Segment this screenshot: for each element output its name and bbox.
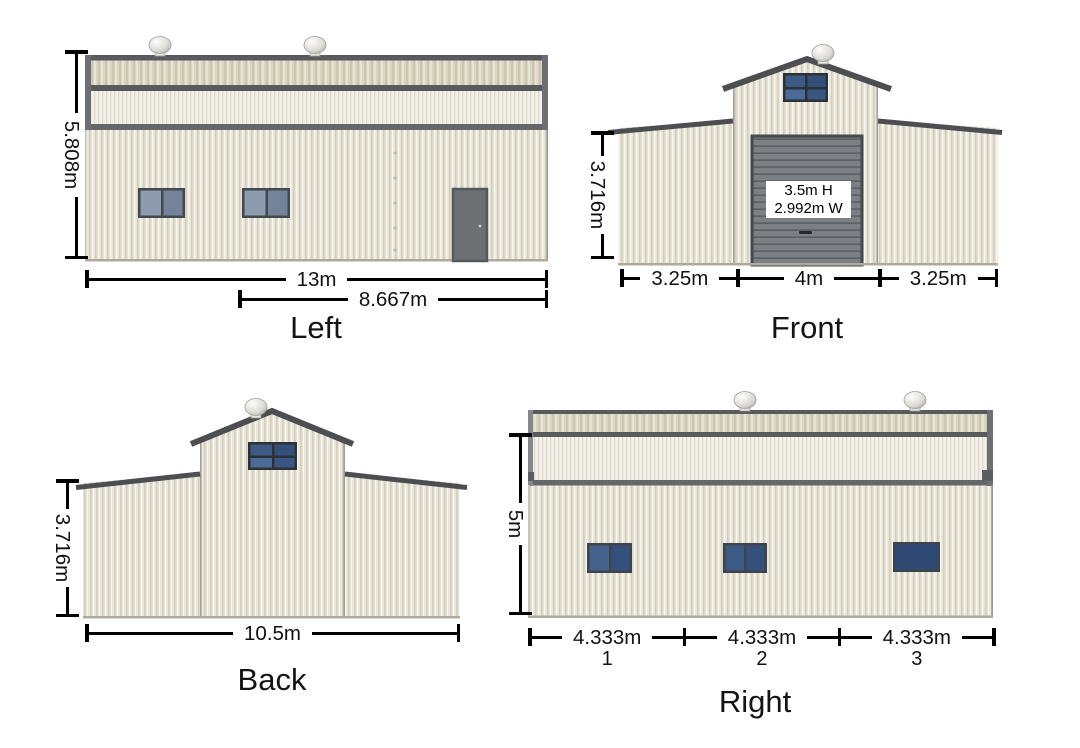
- personnel-door: [453, 189, 487, 261]
- dim-text: 3.25m: [640, 269, 719, 288]
- back-height-dimension: 3.716m: [56, 479, 79, 617]
- right-mid-trim-lower: [528, 480, 993, 486]
- elevation-sheet: 5.808m 13m 8.667m Left: [0, 0, 1080, 748]
- dim-text: 4.333m: [562, 628, 652, 647]
- dim-text: 3.716m: [50, 514, 74, 582]
- roof-vent: [149, 37, 171, 57]
- garage-door-handle: [799, 231, 812, 234]
- view-title-front: Front: [737, 310, 877, 346]
- front-right-wing-wall: [878, 120, 998, 265]
- view-title-back: Back: [202, 662, 342, 698]
- front-ground-line: [618, 263, 998, 266]
- dim-text: 4.333m: [872, 628, 962, 647]
- right-roof-band: [528, 413, 993, 432]
- bay-number: 3: [841, 649, 992, 669]
- back-right-wing-wall: [345, 473, 460, 618]
- right-window-3: [893, 542, 940, 572]
- left-elevation-drawing: [80, 35, 555, 267]
- bay-number: 1: [532, 649, 683, 669]
- left-clerestory-band: [85, 91, 548, 124]
- front-bay-dimensions: 3.25m 4m 3.25m: [620, 269, 998, 287]
- dim-text: 3.716m: [585, 161, 609, 229]
- left-corner-trim-right: [542, 55, 548, 130]
- dim-text: 5m: [503, 510, 527, 538]
- bay-number: 2: [686, 649, 837, 669]
- dim-text: 4m: [784, 269, 834, 288]
- dim-text: 4.333m: [717, 628, 807, 647]
- gable-window: [248, 442, 297, 470]
- garage-door-size-label: 3.5m H 2.992m W: [766, 181, 851, 218]
- right-height-dimension: 5m: [509, 433, 532, 615]
- right-elevation-drawing: [520, 390, 1000, 620]
- right-clerestory-band: [528, 437, 993, 480]
- view-title-left: Left: [246, 310, 386, 346]
- back-left-wing-wall: [83, 473, 200, 618]
- right-top-trim: [528, 410, 993, 414]
- left-window-1: [138, 188, 185, 218]
- view-title-right: Right: [685, 684, 825, 720]
- right-mid-trim-upper: [528, 432, 993, 437]
- left-partial-width-dimension: 8.667m: [238, 290, 548, 308]
- left-height-dimension: 5.808m: [65, 50, 88, 259]
- right-bay-dimensions: 4.333m 1 4.333m 2 4.333m: [528, 628, 996, 646]
- roof-vent: [734, 392, 756, 412]
- back-width-dimension: 10.5m: [85, 624, 460, 642]
- roof-vent: [304, 37, 326, 57]
- dim-text: 3.25m: [899, 269, 978, 288]
- dim-text: 10.5m: [233, 624, 312, 643]
- right-window-2: [723, 543, 767, 573]
- left-mid-trim-upper: [85, 85, 548, 91]
- left-total-width-dimension: 13m: [85, 270, 548, 288]
- left-roof-band: [85, 60, 548, 85]
- front-elevation-drawing: [600, 35, 1010, 270]
- back-ground-line: [83, 616, 460, 619]
- right-window-1: [587, 543, 632, 573]
- left-window-2: [242, 188, 290, 218]
- right-ground-line: [528, 616, 993, 619]
- left-mid-trim-lower: [85, 124, 548, 130]
- gable-window: [783, 73, 828, 102]
- front-left-wing-wall: [618, 120, 733, 265]
- roof-vent: [904, 392, 926, 412]
- front-height-dimension: 3.716m: [591, 131, 614, 259]
- dim-text: 13m: [286, 270, 348, 289]
- back-elevation-drawing: [75, 390, 475, 625]
- dim-text: 8.667m: [348, 290, 438, 309]
- dim-text: 5.808m: [59, 120, 83, 188]
